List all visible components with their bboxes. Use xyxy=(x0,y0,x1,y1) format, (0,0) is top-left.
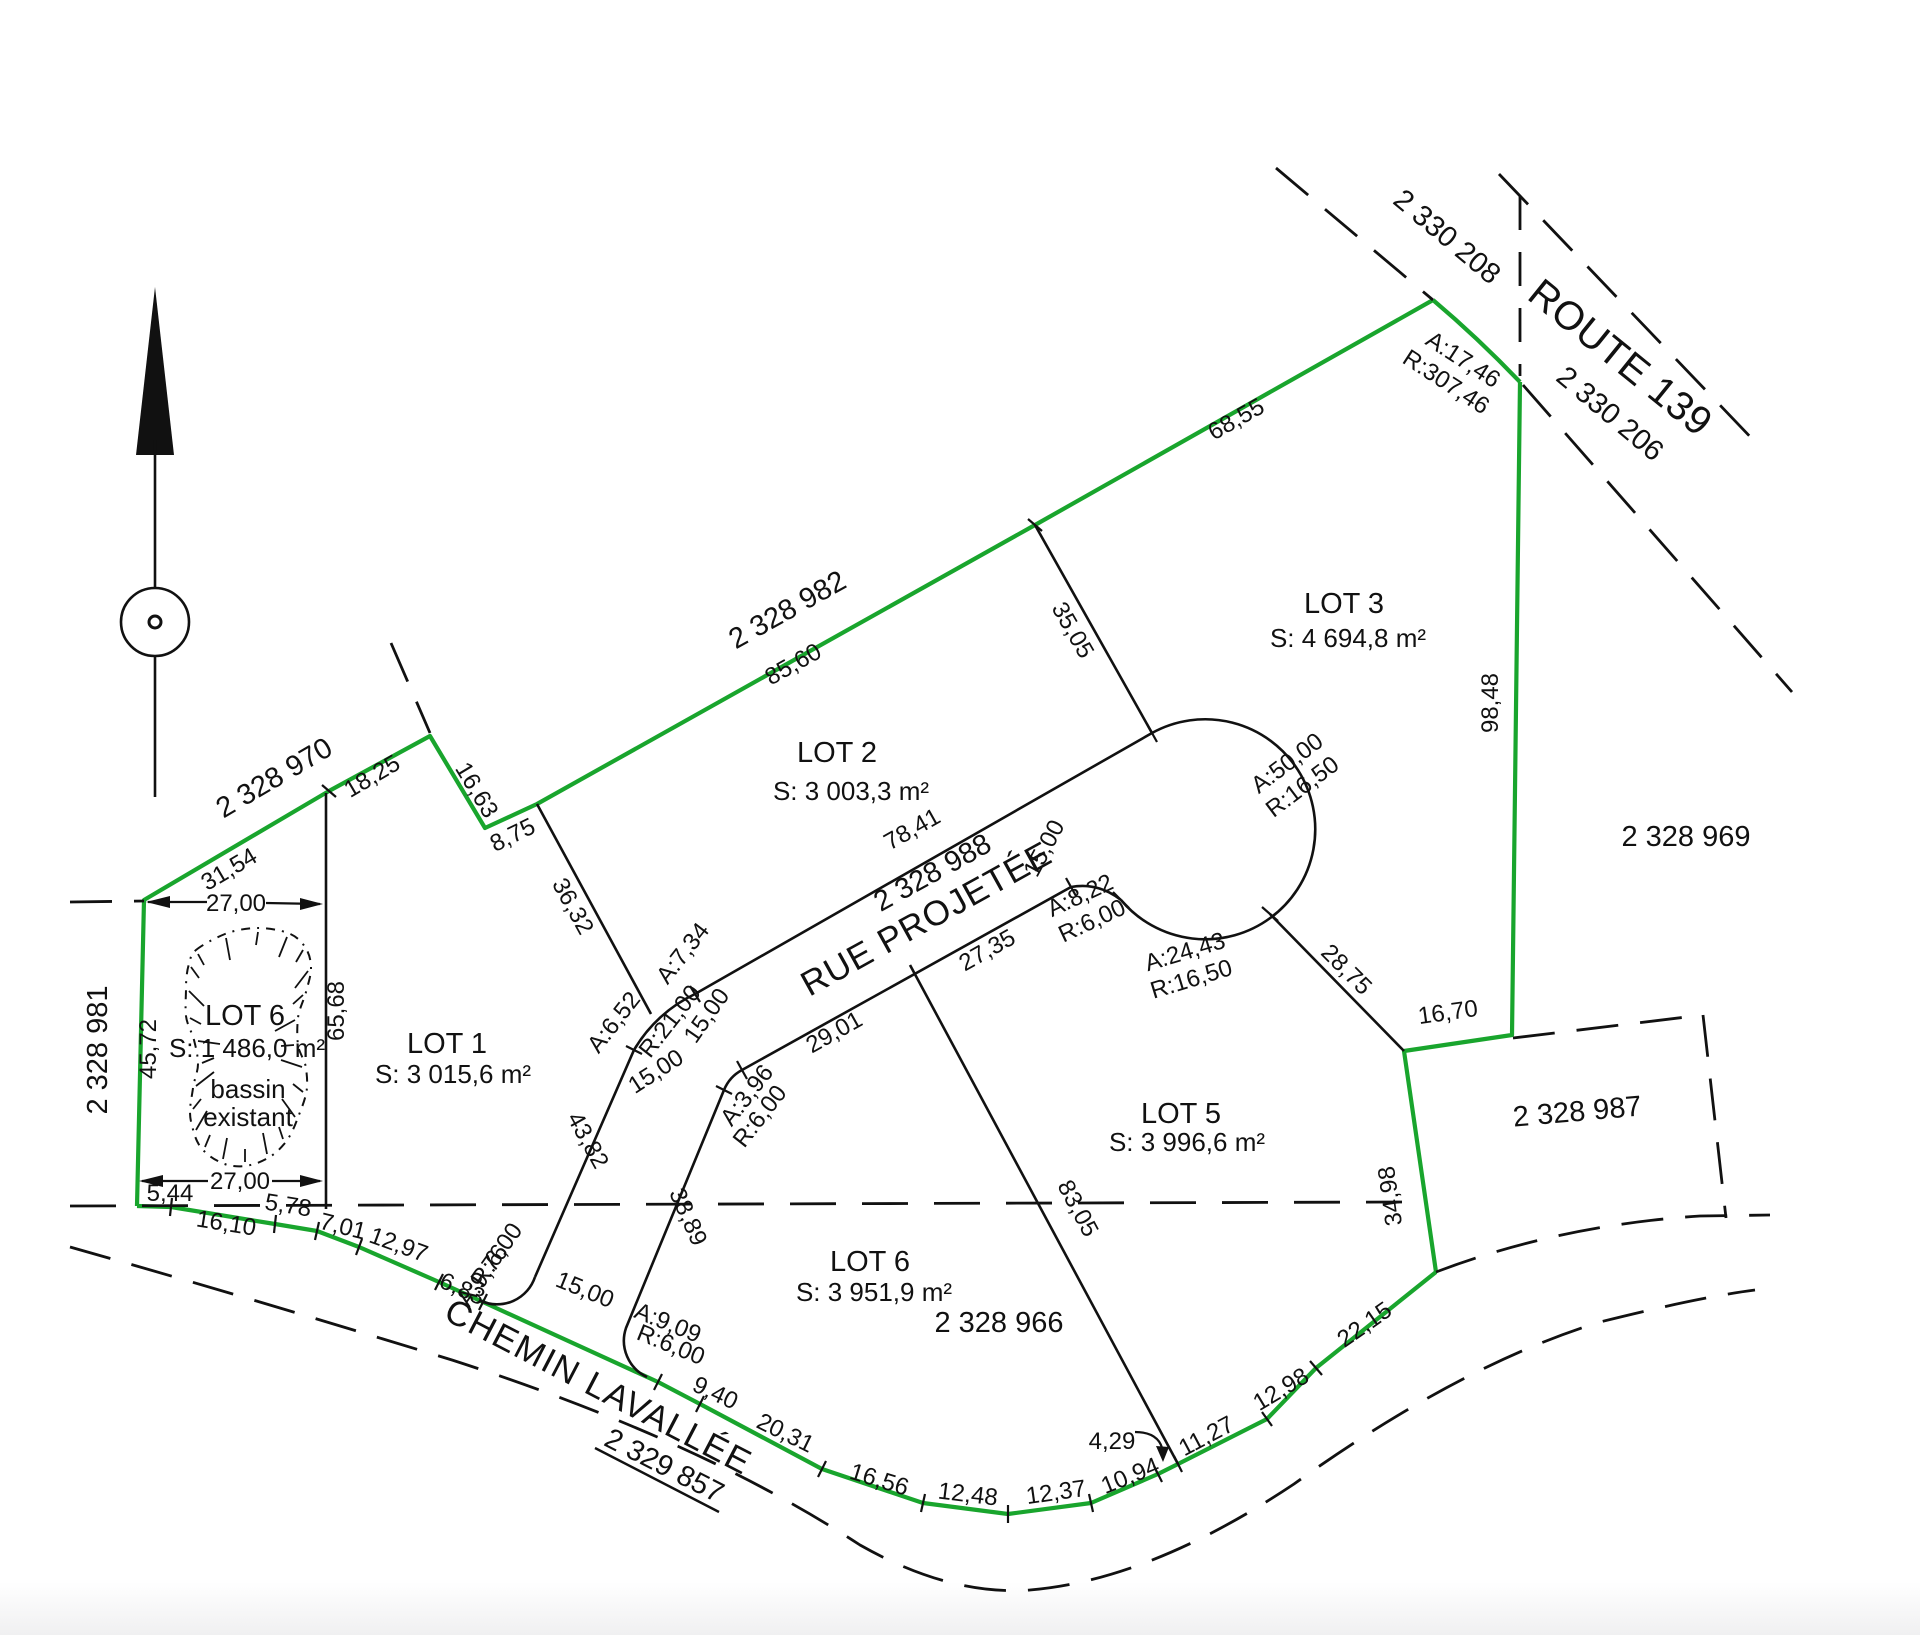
svg-text:27,00: 27,00 xyxy=(206,890,266,917)
svg-text:2 328 981: 2 328 981 xyxy=(82,985,114,1114)
svg-text:LOT 1: LOT 1 xyxy=(407,1028,487,1060)
svg-text:5,44: 5,44 xyxy=(147,1180,194,1207)
svg-text:bassin: bassin xyxy=(210,1074,285,1104)
svg-text:LOT 6: LOT 6 xyxy=(205,1000,285,1032)
svg-text:27,00: 27,00 xyxy=(210,1168,270,1195)
svg-text:45,72: 45,72 xyxy=(135,1019,162,1079)
svg-text:S: 3 951,9 m²: S: 3 951,9 m² xyxy=(796,1277,952,1307)
svg-text:existant: existant xyxy=(203,1102,293,1132)
svg-text:2 328 966: 2 328 966 xyxy=(934,1307,1063,1339)
svg-text:S: 3 015,6 m²: S: 3 015,6 m² xyxy=(375,1059,531,1089)
svg-text:4,29: 4,29 xyxy=(1089,1428,1136,1455)
svg-text:S: 3 003,3 m²: S: 3 003,3 m² xyxy=(773,776,929,806)
svg-text:S: 3 996,6 m²: S: 3 996,6 m² xyxy=(1109,1127,1265,1157)
svg-text:98,48: 98,48 xyxy=(1477,673,1504,733)
svg-text:LOT 3: LOT 3 xyxy=(1304,588,1384,620)
svg-text:S: 1 486,0 m²: S: 1 486,0 m² xyxy=(169,1033,325,1063)
svg-text:S: 4 694,8 m²: S: 4 694,8 m² xyxy=(1270,623,1426,653)
svg-text:65,68: 65,68 xyxy=(323,981,350,1041)
svg-text:LOT 5: LOT 5 xyxy=(1141,1098,1221,1130)
svg-text:LOT 6: LOT 6 xyxy=(830,1246,910,1278)
svg-text:LOT 2: LOT 2 xyxy=(797,737,877,769)
svg-text:2 328 969: 2 328 969 xyxy=(1621,821,1750,853)
